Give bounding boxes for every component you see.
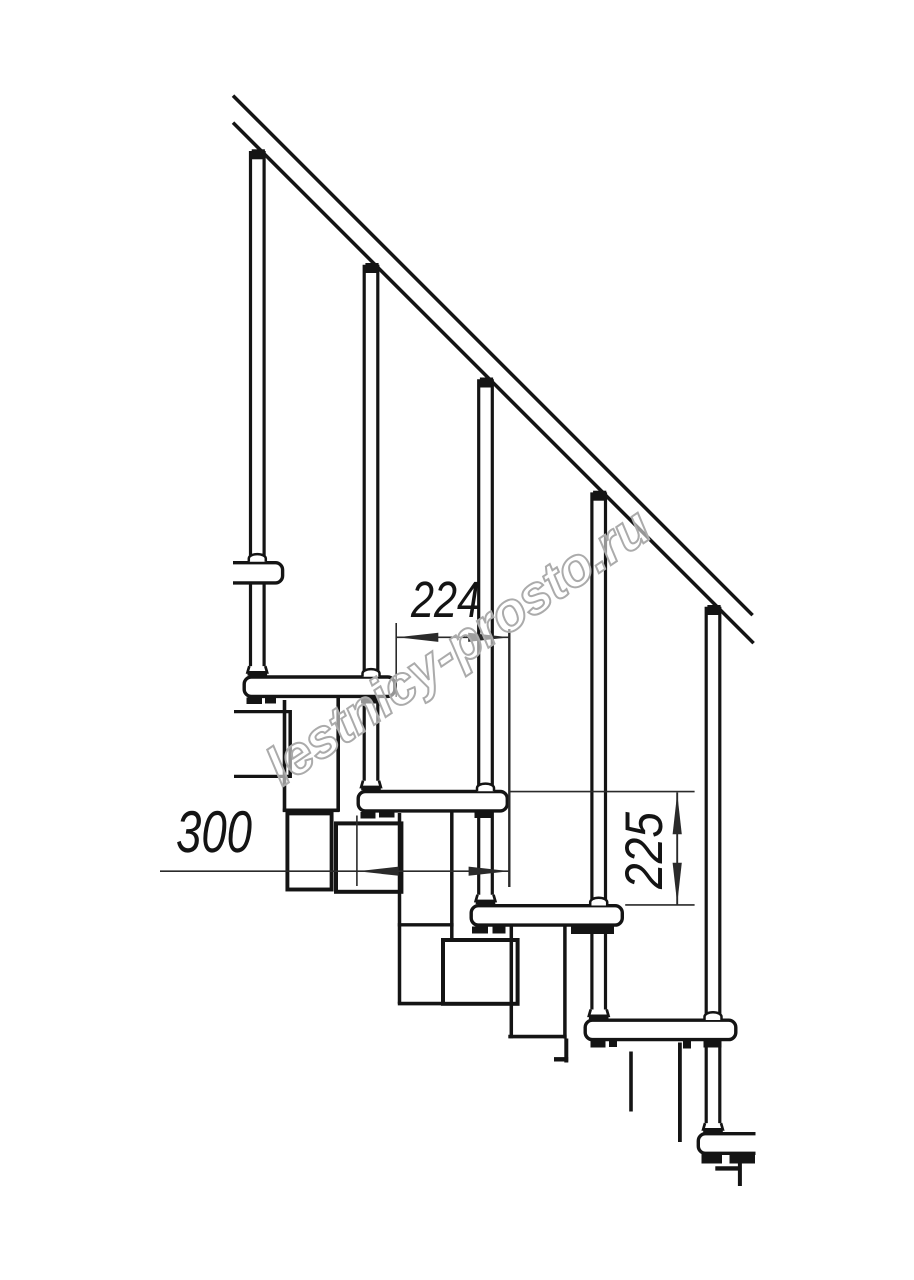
svg-text:225: 225 (615, 812, 674, 890)
svg-text:300: 300 (176, 799, 252, 865)
